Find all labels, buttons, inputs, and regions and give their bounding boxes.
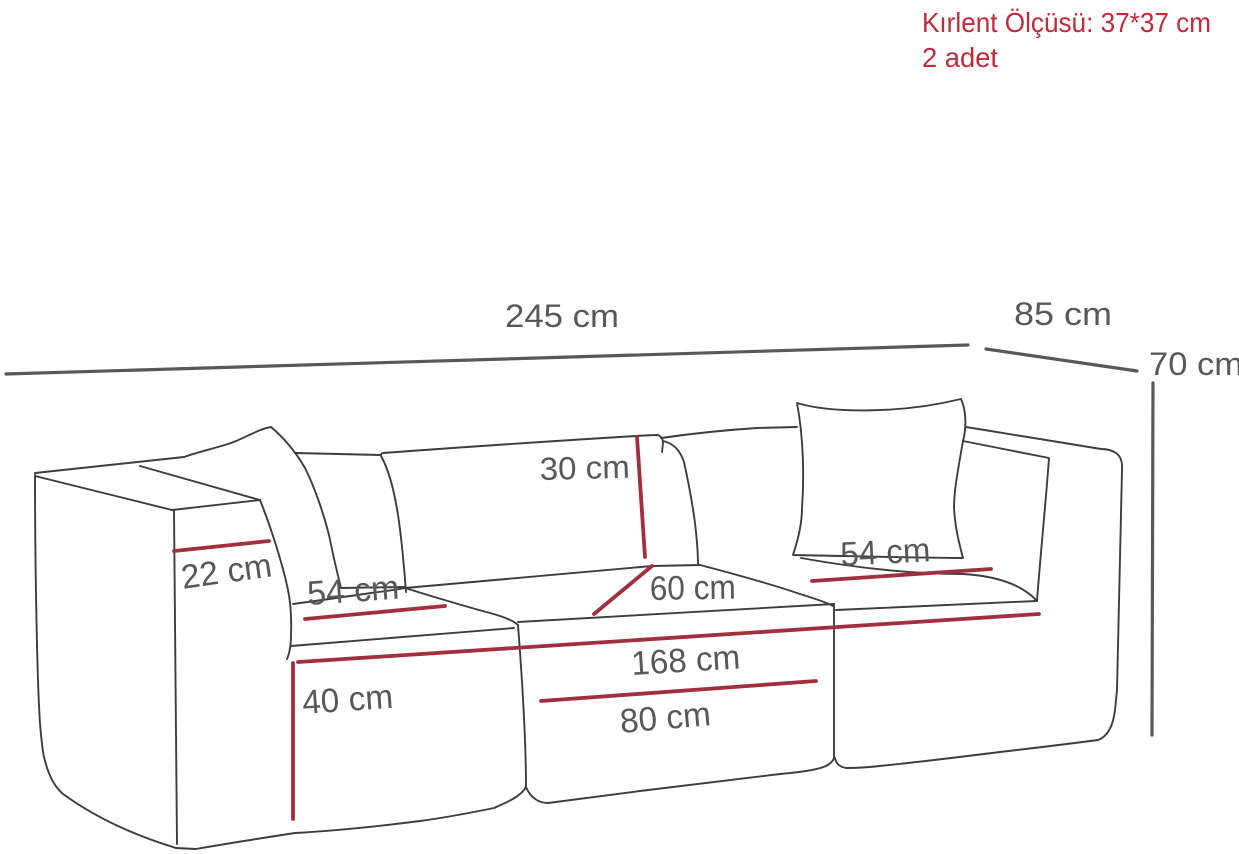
svg-text:168 cm: 168 cm — [630, 638, 741, 683]
svg-text:80 cm: 80 cm — [618, 695, 712, 741]
svg-text:54 cm: 54 cm — [306, 569, 400, 613]
svg-text:30 cm: 30 cm — [539, 449, 630, 487]
svg-text:60 cm: 60 cm — [649, 568, 736, 607]
svg-text:40 cm: 40 cm — [301, 678, 394, 722]
svg-text:22 cm: 22 cm — [179, 546, 274, 596]
svg-text:85 cm: 85 cm — [1014, 296, 1112, 332]
svg-text:2 adet: 2 adet — [922, 42, 998, 73]
svg-text:70 cm: 70 cm — [1149, 346, 1239, 382]
svg-text:245 cm: 245 cm — [505, 298, 619, 334]
svg-text:54 cm: 54 cm — [839, 531, 931, 574]
svg-text:Kırlent Ölçüsü: 37*37 cm: Kırlent Ölçüsü: 37*37 cm — [922, 7, 1211, 38]
